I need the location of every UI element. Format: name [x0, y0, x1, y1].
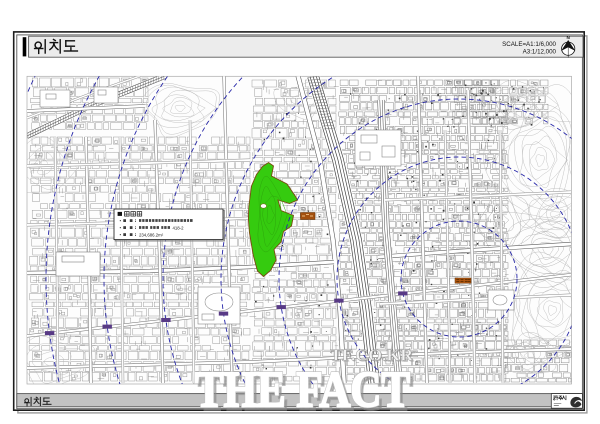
- svg-text:418-2: 418-2: [173, 225, 185, 230]
- svg-text:THE FACT: THE FACT: [195, 363, 410, 419]
- svg-text:SCALE=A1:1/6,000: SCALE=A1:1/6,000: [502, 41, 556, 48]
- svg-text:A3:1/12,000: A3:1/12,000: [523, 49, 557, 56]
- svg-text:TF.CO.KR: TF.CO.KR: [330, 346, 414, 365]
- svg-text:234,686.2m²: 234,686.2m²: [139, 232, 164, 237]
